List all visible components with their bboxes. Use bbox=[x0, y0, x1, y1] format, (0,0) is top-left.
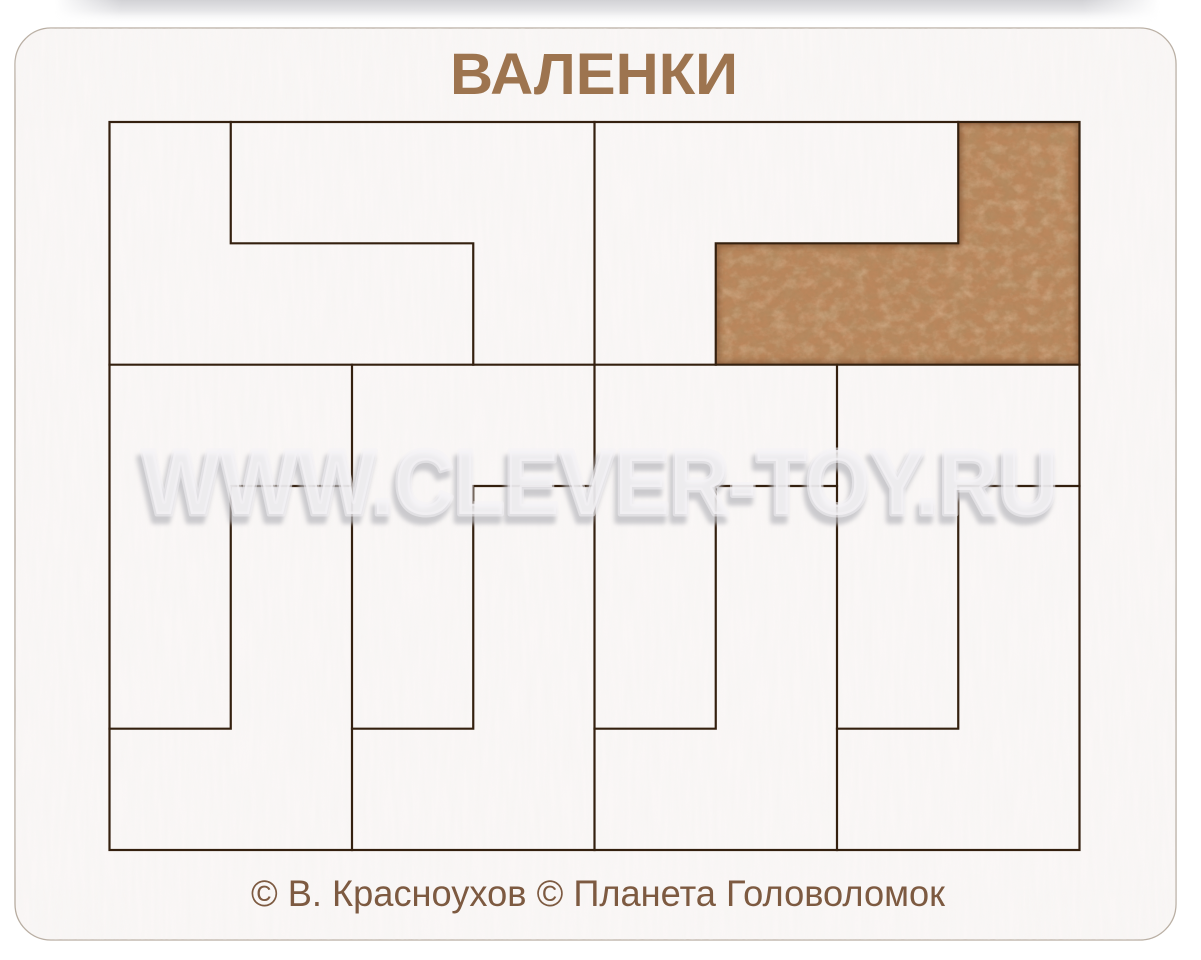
svg-text:© В. Красноухов © Планета Гол: © В. Красноухов © Планета Головоломок bbox=[251, 873, 946, 914]
svg-text:ВАЛЕНКИ: ВАЛЕНКИ bbox=[450, 42, 738, 107]
svg-text:WWW.CLEVER-TOY.RU: WWW.CLEVER-TOY.RU bbox=[142, 432, 1058, 534]
